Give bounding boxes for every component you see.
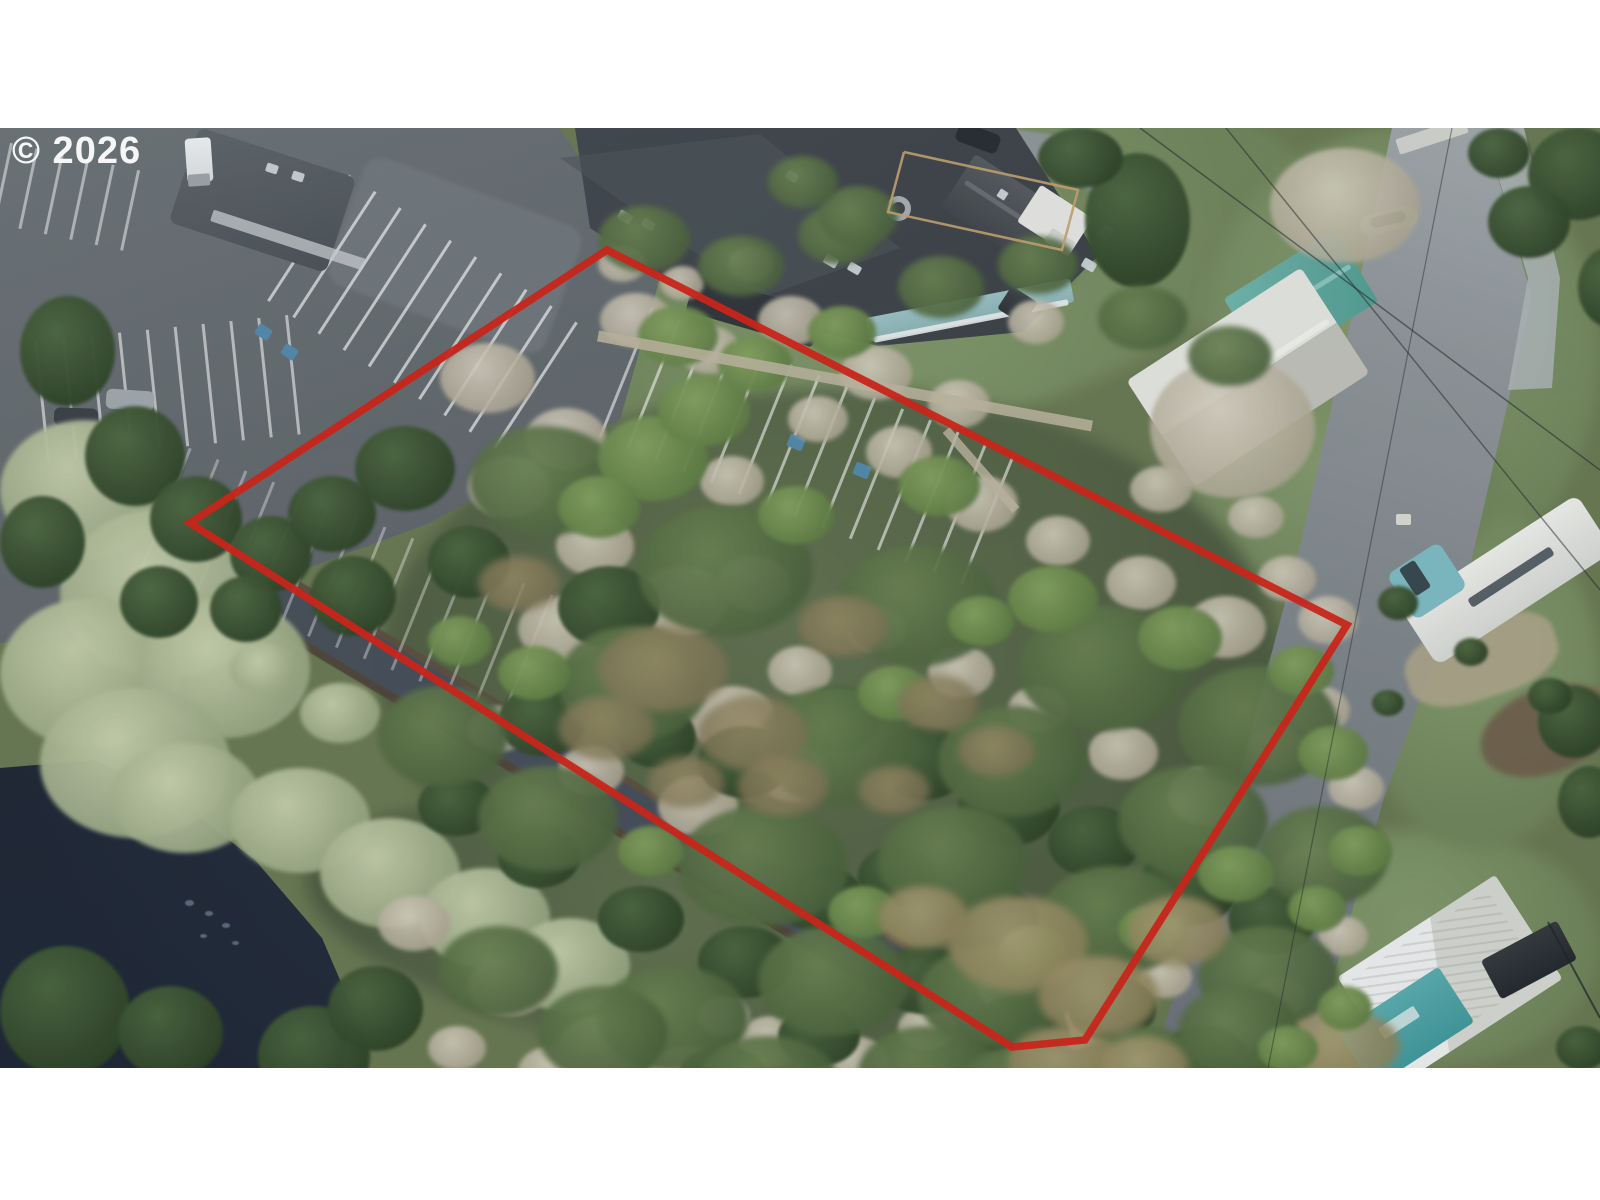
bare-tree	[1278, 846, 1338, 892]
handicap-space-marker	[786, 433, 806, 451]
skylight	[1097, 224, 1114, 242]
clinic-roof-wing	[169, 128, 357, 273]
box-truck	[184, 137, 213, 183]
paved-lane	[237, 561, 1060, 1068]
boat-interior	[1369, 210, 1407, 229]
vegetation-base	[380, 388, 1280, 948]
conifer-tree	[1372, 690, 1404, 716]
dry-grass-patch	[948, 896, 1088, 991]
tree-canopy	[958, 1046, 1088, 1068]
bare-tree	[928, 380, 990, 428]
tree-canopy	[758, 486, 834, 544]
bare-tree	[1150, 358, 1315, 498]
roof-ridge	[964, 180, 1042, 233]
conifer-tree	[698, 926, 792, 998]
fire-pit	[886, 196, 911, 221]
conifer-tree	[1488, 186, 1570, 258]
conifer-tree	[1556, 1026, 1600, 1068]
bare-tree	[1168, 766, 1248, 826]
parking-court	[324, 153, 586, 359]
bare-tree	[440, 343, 535, 413]
driveway	[1017, 133, 1122, 201]
brush-patch	[958, 726, 1034, 776]
brush-patch	[698, 696, 808, 771]
lawn	[1260, 828, 1600, 1068]
conifer-tree	[85, 406, 185, 506]
tree-canopy	[1258, 1026, 1318, 1068]
conifer-tree	[1228, 886, 1316, 954]
gravel-path	[1396, 598, 1568, 720]
house-roof	[1337, 875, 1562, 1068]
tree-canopy	[1258, 806, 1388, 906]
conifer-tree	[1578, 246, 1600, 328]
bare-tree	[518, 1046, 588, 1068]
rv-windshield	[1399, 560, 1432, 597]
conifer-tree	[558, 566, 660, 648]
bare-tree	[1186, 596, 1266, 658]
tree-canopy	[538, 986, 668, 1068]
tree-canopy	[1118, 906, 1182, 954]
dry-grass-patch	[1038, 956, 1158, 1036]
bare-tree	[658, 776, 738, 836]
tree-canopy	[598, 416, 708, 501]
bare-tree	[1252, 976, 1306, 1018]
conifer-tree	[778, 1006, 860, 1066]
tree-canopy	[618, 826, 684, 876]
roof-ribs	[1351, 890, 1542, 1064]
conifer-tree	[328, 966, 423, 1051]
bare-tree	[648, 1046, 726, 1068]
brush-patch	[598, 626, 728, 711]
pond-water	[0, 128, 1600, 1068]
conifer-tree	[210, 576, 282, 642]
vegetation-base	[285, 749, 1136, 1068]
neighbor-roof	[1395, 128, 1468, 155]
tree-canopy	[678, 806, 848, 926]
bare-tree	[378, 896, 450, 951]
bare-tree	[678, 326, 740, 374]
skylight	[265, 162, 279, 174]
tree-canopy	[598, 966, 748, 1068]
tree-canopy	[838, 546, 998, 666]
conifer-tree	[258, 1006, 370, 1068]
walkway	[210, 210, 366, 271]
roof-ridge	[1166, 318, 1330, 428]
water-reflection	[185, 900, 194, 906]
parked-car	[54, 407, 99, 427]
chimney	[996, 188, 1008, 200]
tree-canopy	[758, 686, 918, 806]
tree-canopy	[598, 206, 690, 272]
tree-canopy	[1268, 646, 1334, 696]
skylight	[1080, 257, 1097, 273]
brush-patch	[648, 756, 724, 808]
bare-tree	[558, 746, 624, 796]
bare-tree	[818, 1036, 888, 1068]
skylight	[641, 217, 657, 231]
pale-conifer-tree	[300, 683, 380, 743]
conifer-tree	[355, 426, 455, 511]
conifer-tree	[118, 986, 223, 1068]
conifer-tree	[1158, 1026, 1250, 1068]
pale-conifer-tree	[420, 868, 550, 968]
conifer-tree	[1068, 886, 1164, 962]
utility-trailer	[1481, 920, 1578, 999]
bare-tree	[738, 1016, 804, 1066]
conifer-tree	[1085, 153, 1190, 288]
lane-road-junction	[996, 997, 1133, 1068]
parking-stripes	[34, 315, 300, 461]
street	[0, 128, 1600, 1068]
tree-canopy	[558, 476, 640, 538]
skylight	[616, 209, 633, 225]
handicap-space-marker	[254, 323, 273, 341]
tree-canopy	[898, 456, 980, 516]
skylight	[785, 170, 800, 184]
parking-stripes	[140, 448, 560, 718]
rv-cab	[1386, 541, 1467, 620]
clinic-roof-facet	[0, 128, 1600, 1068]
conifer-tree	[20, 296, 115, 406]
water-reflection	[222, 923, 230, 928]
copyright-watermark: © 2026	[12, 130, 141, 173]
tree-canopy	[718, 336, 792, 392]
bare-tree	[898, 1006, 956, 1050]
conifer-tree	[230, 516, 312, 592]
skylight	[291, 170, 305, 182]
parked-car	[105, 388, 154, 411]
conifer-tree	[798, 686, 880, 752]
bare-tree	[600, 293, 672, 347]
tree-canopy	[1178, 666, 1338, 786]
bare-tree	[840, 346, 912, 400]
conifer-tree	[1528, 128, 1600, 220]
bare-tree	[1298, 596, 1358, 644]
tree-canopy	[1328, 826, 1392, 876]
brush-patch	[558, 696, 654, 760]
tree-canopy	[1118, 766, 1268, 876]
brush-patch	[738, 756, 828, 816]
conifer-tree	[598, 886, 684, 952]
conifer-tree	[778, 866, 864, 932]
bare-tree	[978, 966, 1034, 1010]
conifer-tree	[618, 706, 696, 768]
bare-tree	[468, 956, 550, 1016]
bare-tree	[468, 456, 550, 518]
bare-tree	[660, 266, 704, 300]
tree-canopy	[858, 1026, 998, 1068]
rv-windows	[1467, 546, 1555, 608]
conifer-tree	[948, 886, 1040, 958]
clinic-wall	[866, 278, 1075, 341]
conifer-tree	[1058, 1046, 1140, 1068]
tree-canopy	[498, 646, 570, 700]
skylight	[847, 261, 863, 275]
bare-tree	[1328, 766, 1384, 810]
bare-tree	[688, 686, 776, 750]
bare-tree	[1288, 686, 1350, 734]
water-reflection	[200, 934, 207, 938]
bare-tree	[468, 706, 528, 752]
garden-shed	[997, 286, 1038, 326]
teal-house-wall	[1338, 967, 1475, 1068]
conifer-tree	[698, 726, 790, 798]
tree-canopy	[1198, 926, 1338, 1026]
conifer-tree	[968, 996, 1070, 1068]
conifer-tree	[418, 776, 496, 836]
bare-tree	[1258, 556, 1316, 601]
conifer-tree	[120, 566, 198, 638]
boat	[1358, 203, 1419, 237]
conifer-tree	[1138, 846, 1240, 926]
sidewalk	[0, 128, 1600, 1068]
brush-patch	[858, 766, 930, 814]
lawn	[843, 128, 1157, 351]
pale-conifer-tree	[110, 743, 260, 853]
tree-canopy	[938, 706, 1088, 816]
conifer-tree	[1558, 766, 1600, 838]
tree-canopy	[998, 236, 1078, 294]
mailbox	[1396, 514, 1411, 525]
bare-tree	[718, 556, 790, 611]
tree-canopy	[1318, 986, 1372, 1030]
pale-conifer-tree	[140, 598, 310, 738]
pale-conifer-tree	[230, 643, 300, 695]
conifer-tree	[288, 476, 376, 552]
conifer-tree	[0, 946, 130, 1068]
clinic-roof	[0, 128, 1600, 1068]
conifer-tree	[0, 496, 85, 588]
tree-canopy	[1098, 286, 1188, 350]
doorway	[1292, 310, 1312, 332]
brush-patch	[478, 556, 560, 611]
tree-canopy	[1198, 846, 1274, 902]
tree-canopy	[658, 376, 750, 446]
lawn	[1180, 368, 1500, 598]
tree-canopy	[918, 946, 1058, 1046]
truck-cab	[188, 173, 211, 187]
tree-canopy	[898, 256, 984, 318]
conifer-tree	[678, 1046, 766, 1068]
bare-tree	[928, 646, 994, 698]
bare-tree	[1058, 1006, 1120, 1052]
house-addition	[1017, 185, 1093, 256]
bare-tree	[1088, 726, 1158, 780]
parking-lot-asphalt	[0, 128, 1600, 1068]
conifer-tree	[1038, 128, 1123, 188]
porch	[1044, 228, 1076, 257]
dry-grass-patch	[1098, 1036, 1188, 1068]
lawn	[1360, 508, 1600, 848]
pale-conifer-tree	[320, 818, 460, 928]
tree-canopy	[768, 156, 838, 208]
bare-tree	[558, 1016, 646, 1068]
bare-tree	[946, 476, 1018, 532]
conifer-tree	[948, 1046, 1020, 1068]
brush-patch	[898, 676, 978, 731]
bare-tree	[608, 646, 686, 704]
teal-roof-building	[1224, 230, 1379, 370]
vegetation-base	[0, 278, 270, 708]
tree-canopy	[818, 186, 898, 246]
conifer-tree	[150, 476, 242, 562]
conifer-tree	[310, 556, 396, 636]
lawn	[514, 128, 1345, 524]
bare-tree	[1138, 956, 1192, 998]
tree-canopy	[758, 926, 908, 1036]
bare-tree	[525, 408, 607, 470]
tree-canopy	[1008, 566, 1098, 632]
conifer-tree	[498, 826, 580, 888]
atmosphere-overlay	[0, 128, 1600, 1068]
pale-conifer-tree	[0, 598, 180, 748]
bare-tree	[1026, 516, 1090, 566]
bare-tree	[866, 426, 932, 478]
conifer-tree	[1468, 128, 1530, 178]
dry-grass-patch	[1270, 1008, 1400, 1068]
conifer-tree	[1538, 686, 1600, 758]
dry-grass-patch	[1128, 896, 1228, 966]
bare-tree	[1008, 300, 1064, 344]
hedge	[186, 584, 274, 630]
tree-canopy	[438, 926, 558, 1016]
bare-tree	[428, 1026, 486, 1068]
parking-stripes	[599, 307, 1027, 589]
tree-canopy	[1288, 886, 1346, 932]
tree-canopy	[798, 206, 878, 264]
conifer-tree	[1528, 678, 1572, 714]
dry-grass-patch	[1008, 1026, 1118, 1068]
bare-tree	[698, 996, 750, 1036]
roof-ridge	[1251, 264, 1351, 329]
water-reflection	[205, 911, 213, 916]
brush-patch	[798, 596, 888, 656]
parking-stripes	[267, 174, 588, 455]
water-reflection	[232, 941, 239, 945]
bare-tree	[1318, 916, 1368, 956]
lawn	[1200, 128, 1600, 588]
tree-canopy	[828, 886, 898, 938]
bare-tree	[848, 606, 906, 652]
tree-canopy	[698, 1036, 838, 1068]
skylight	[822, 253, 839, 269]
bare-tree	[636, 566, 728, 636]
conifer-tree	[958, 766, 1060, 846]
bare-tree	[788, 396, 848, 442]
bare-tree	[1130, 466, 1192, 512]
conifer-tree	[428, 526, 510, 598]
tree-canopy	[1178, 986, 1298, 1068]
bare-tree	[758, 296, 824, 346]
tree-canopy	[558, 626, 708, 741]
bare-tree	[1228, 496, 1284, 538]
rv-body	[1400, 494, 1600, 665]
pale-conifer-tree	[0, 420, 170, 560]
handicap-space-marker	[852, 461, 872, 479]
metal-barn-roof	[1126, 268, 1369, 487]
parked-suv	[954, 128, 1002, 155]
gambrel-house-roof	[941, 154, 1060, 262]
tree-canopy	[1018, 606, 1188, 731]
bare-tree	[1248, 726, 1304, 770]
mulch-bed	[1468, 667, 1600, 795]
tree-canopy	[998, 926, 1068, 978]
conifer-tree	[1378, 586, 1418, 620]
conifer-tree	[878, 726, 970, 800]
pale-conifer-tree	[60, 508, 270, 678]
bare-tree	[1008, 686, 1068, 732]
porch-roof	[1294, 311, 1338, 352]
bare-tree	[1270, 148, 1420, 263]
conifer-tree	[878, 946, 970, 1014]
tree-canopy	[1038, 866, 1188, 976]
tree-canopy	[1188, 326, 1272, 386]
aerial-photo: © 2026	[0, 128, 1600, 1068]
bare-tree	[598, 246, 646, 282]
tree-canopy	[478, 766, 618, 871]
house-windows	[1378, 1006, 1420, 1040]
conifer-tree	[858, 846, 936, 906]
conifer-tree	[1454, 638, 1488, 666]
tree-canopy	[808, 306, 876, 358]
bare-tree	[768, 646, 832, 696]
tree-canopy	[878, 806, 1028, 916]
scene-layer	[0, 128, 1600, 1068]
listing-photo-page: © 2026	[0, 0, 1600, 1200]
bare-tree	[700, 456, 764, 506]
pale-conifer-tree	[510, 918, 630, 1013]
conifer-tree	[1068, 976, 1156, 1042]
tree-canopy	[1298, 726, 1368, 780]
conifer-tree	[1228, 1046, 1298, 1068]
tree-canopy	[1078, 1026, 1208, 1068]
tree-canopy	[948, 596, 1014, 646]
tree-canopy	[638, 306, 718, 366]
clinic-trim	[873, 299, 1069, 343]
bare-tree	[1106, 556, 1176, 610]
bare-tree	[518, 596, 606, 662]
bare-tree	[758, 746, 830, 802]
bare-tree	[556, 516, 634, 576]
pale-conifer-tree	[40, 688, 230, 838]
tree-canopy	[698, 236, 784, 296]
tree-canopy	[858, 666, 930, 720]
bare-tree	[728, 246, 774, 282]
pale-conifer-tree	[230, 768, 370, 873]
tree-canopy	[378, 686, 508, 786]
conifer-tree	[498, 686, 586, 756]
tree-canopy	[470, 426, 620, 536]
handicap-space-marker	[280, 343, 299, 361]
tree-canopy	[638, 506, 813, 636]
tree-canopy	[1138, 606, 1222, 670]
dry-grass-patch	[878, 886, 968, 948]
conifer-tree	[1048, 806, 1140, 878]
driveway	[926, 128, 1081, 182]
entrance-canopy	[685, 275, 822, 348]
tree-canopy	[428, 616, 492, 666]
